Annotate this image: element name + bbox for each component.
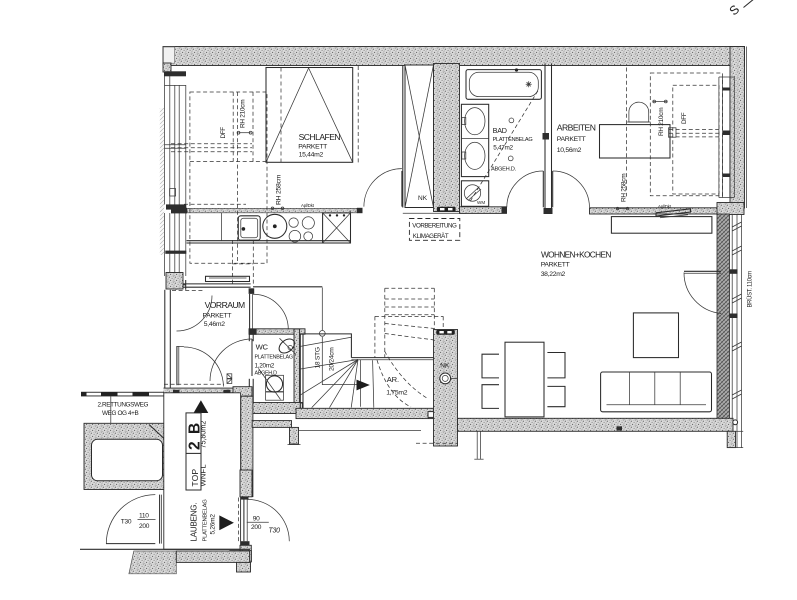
svg-text:15,44m2: 15,44m2 [299,151,324,158]
svg-text:10,56m2: 10,56m2 [557,147,582,154]
svg-text:200: 200 [251,524,262,531]
svg-text:WEG OG 4+B: WEG OG 4+B [102,410,138,417]
svg-text:5,46m2: 5,46m2 [204,321,225,328]
svg-text:110: 110 [139,513,149,520]
svg-text:ARBEITEN: ARBEITEN [557,123,596,133]
svg-text:RH 210cm: RH 210cm [240,100,247,128]
svg-text:5,26m2: 5,26m2 [210,514,217,535]
svg-text:2.RETTUNGSWEG: 2.RETTUNGSWEG [98,401,149,408]
svg-text:RH 210cm: RH 210cm [658,108,665,136]
svg-text:38,22m2: 38,22m2 [541,271,566,278]
svg-text:ABGEH.D: ABGEH.D [255,371,278,377]
svg-text:90: 90 [253,516,260,523]
svg-text:200: 200 [139,523,150,530]
svg-text:WC: WC [256,342,269,351]
svg-text:T30: T30 [269,527,281,534]
svg-text:PARKETT: PARKETT [541,262,570,269]
svg-text:5,47m2: 5,47m2 [493,145,513,152]
svg-text:WM: WM [477,200,485,205]
svg-text:Apl/Dkt: Apl/Dkt [658,204,672,209]
svg-text:SCHLAFEN: SCHLAFEN [299,132,341,142]
svg-text:Apl/Dkt: Apl/Dkt [301,203,315,208]
svg-text:PLATTENBELAG: PLATTENBELAG [493,137,533,143]
svg-text:BRÜST. 110cm: BRÜST. 110cm [747,271,754,308]
svg-text:1,20m2: 1,20m2 [255,362,275,369]
svg-text:KLIMAGERÄT: KLIMAGERÄT [413,233,449,240]
svg-text:PLATTENBELAG: PLATTENBELAG [203,499,209,542]
svg-text:T30: T30 [121,519,132,526]
svg-text:1,75m2: 1,75m2 [386,389,407,396]
svg-text:75,80m2: 75,80m2 [198,421,207,449]
svg-text:PLATTENBELAG: PLATTENBELAG [255,355,293,361]
svg-text:ABGEH.D.: ABGEH.D. [491,167,516,173]
svg-text:WOHNEN+KOCHEN: WOHNEN+KOCHEN [541,249,611,259]
svg-text:RH 258cm: RH 258cm [276,174,283,205]
svg-text:WNFL: WNFL [198,464,207,486]
svg-text:NK: NK [418,195,428,202]
svg-text:BAD: BAD [493,126,507,135]
svg-text:DFF: DFF [220,127,227,139]
svg-text:VORBEREITUNG: VORBEREITUNG [412,223,457,230]
svg-text:LAUBENG.: LAUBENG. [190,503,199,542]
svg-text:AR.: AR. [387,375,399,384]
svg-text:18 STG: 18 STG [315,347,322,368]
svg-text:PARKETT: PARKETT [298,144,327,151]
svg-text:DFF: DFF [681,112,688,124]
svg-text:NK: NK [440,362,450,369]
svg-text:20/24cm: 20/24cm [329,347,336,371]
svg-text:PARKETT: PARKETT [557,136,586,143]
